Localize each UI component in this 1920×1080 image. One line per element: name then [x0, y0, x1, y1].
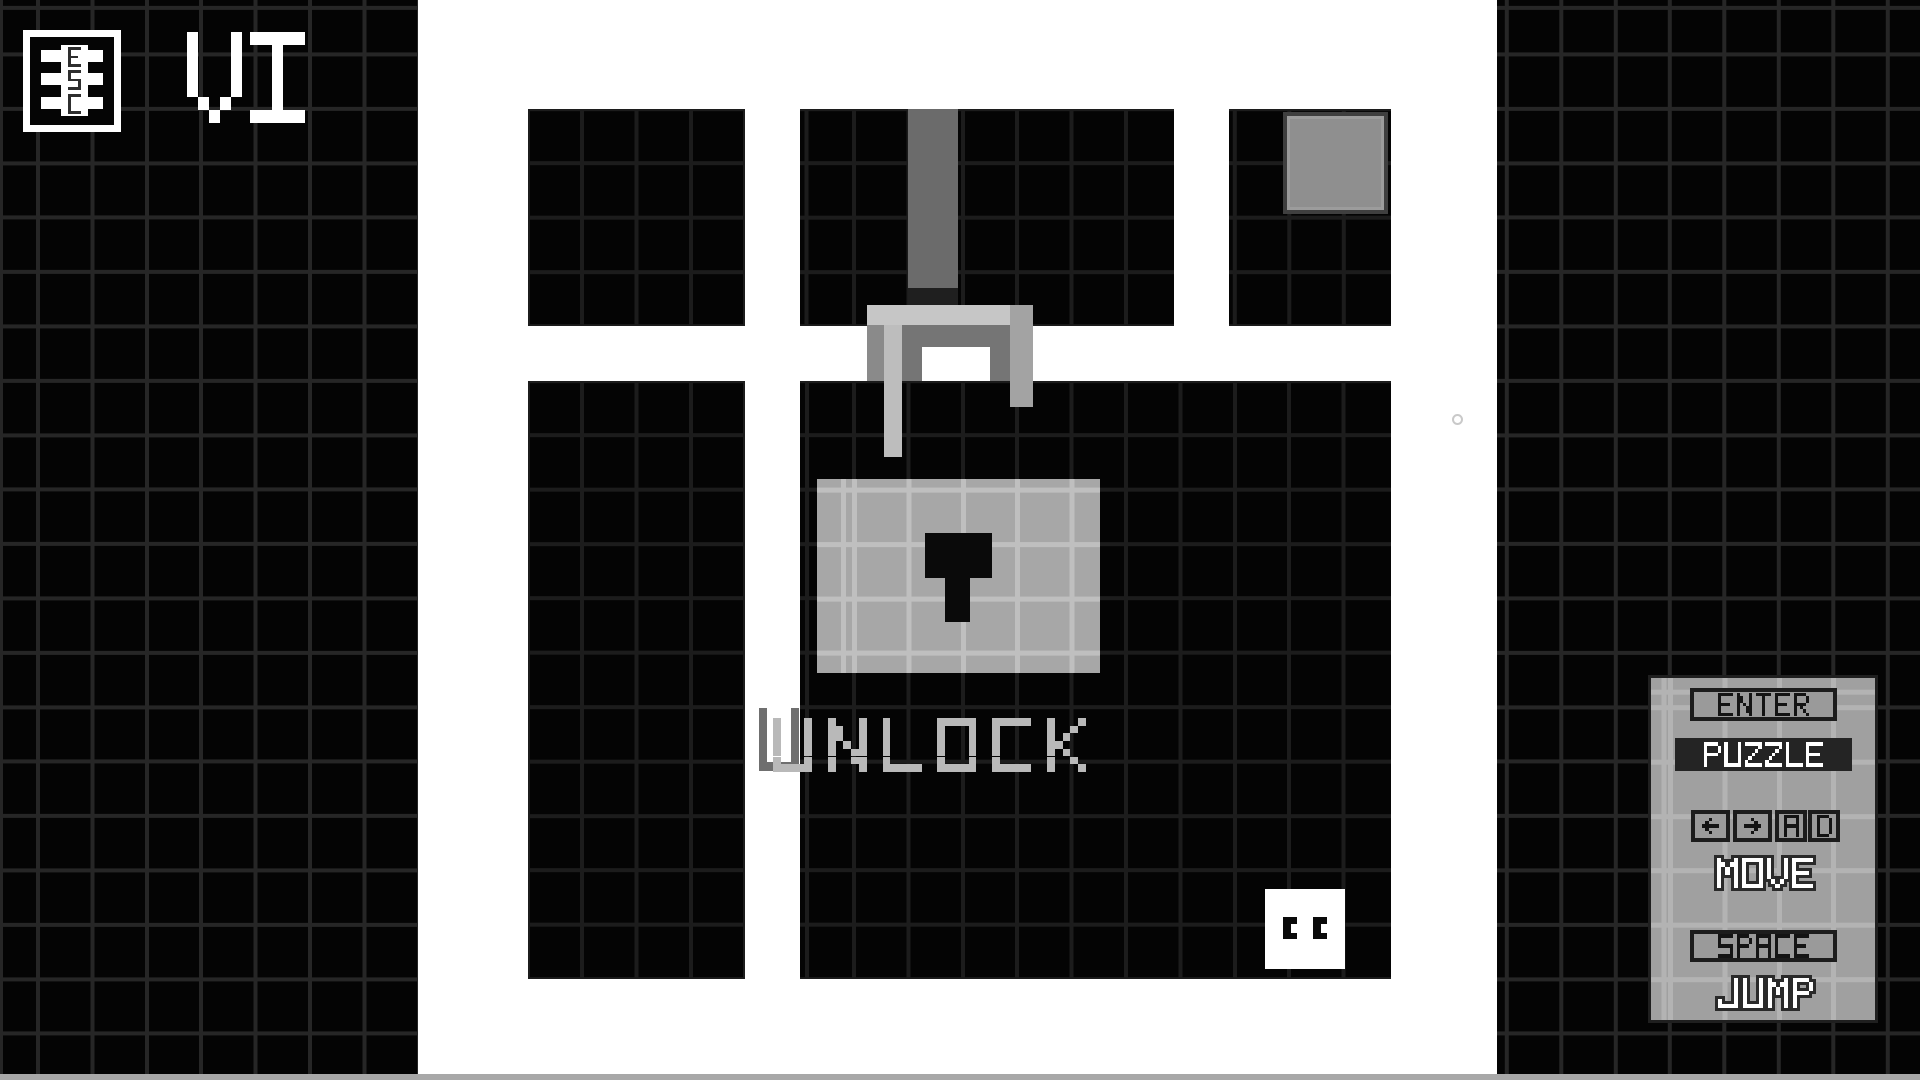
move-action-label: [1705, 857, 1825, 889]
block-top-left: [528, 109, 745, 326]
player-left-eye-icon: [1283, 917, 1297, 939]
right-arrow-key-icon: [1733, 810, 1772, 842]
esc-letter-s: [61, 68, 88, 92]
puzzle-action-label: [1675, 738, 1852, 771]
player-right-eye-icon: [1313, 917, 1327, 939]
esc-letter-e: [61, 45, 88, 69]
controls-panel: [1648, 675, 1878, 1023]
left-arrow-key-icon: [1691, 810, 1730, 842]
vi-logo: [187, 32, 305, 123]
keyhole-icon: [925, 533, 992, 578]
unlock-label: [773, 718, 1093, 773]
game-viewport[interactable]: [0, 0, 1920, 1080]
jump-action-label: [1708, 977, 1823, 1009]
d-key: [1808, 810, 1840, 842]
chain-icon: [908, 109, 958, 288]
enter-key: [1690, 688, 1837, 721]
esc-letter-c: [61, 92, 88, 116]
space-key: [1690, 930, 1837, 962]
keyhole-stem: [945, 578, 970, 622]
player-character[interactable]: [1265, 889, 1345, 969]
block-top-middle: [800, 109, 1174, 326]
bottom-edge-strip: [0, 1074, 1920, 1080]
gray-tile: [1283, 112, 1388, 214]
esc-menu-icon[interactable]: [23, 30, 121, 132]
left-wall-panel: [0, 0, 418, 1080]
particle-ring: [1452, 414, 1463, 425]
block-bottom-left: [528, 381, 745, 979]
a-key: [1775, 810, 1807, 842]
